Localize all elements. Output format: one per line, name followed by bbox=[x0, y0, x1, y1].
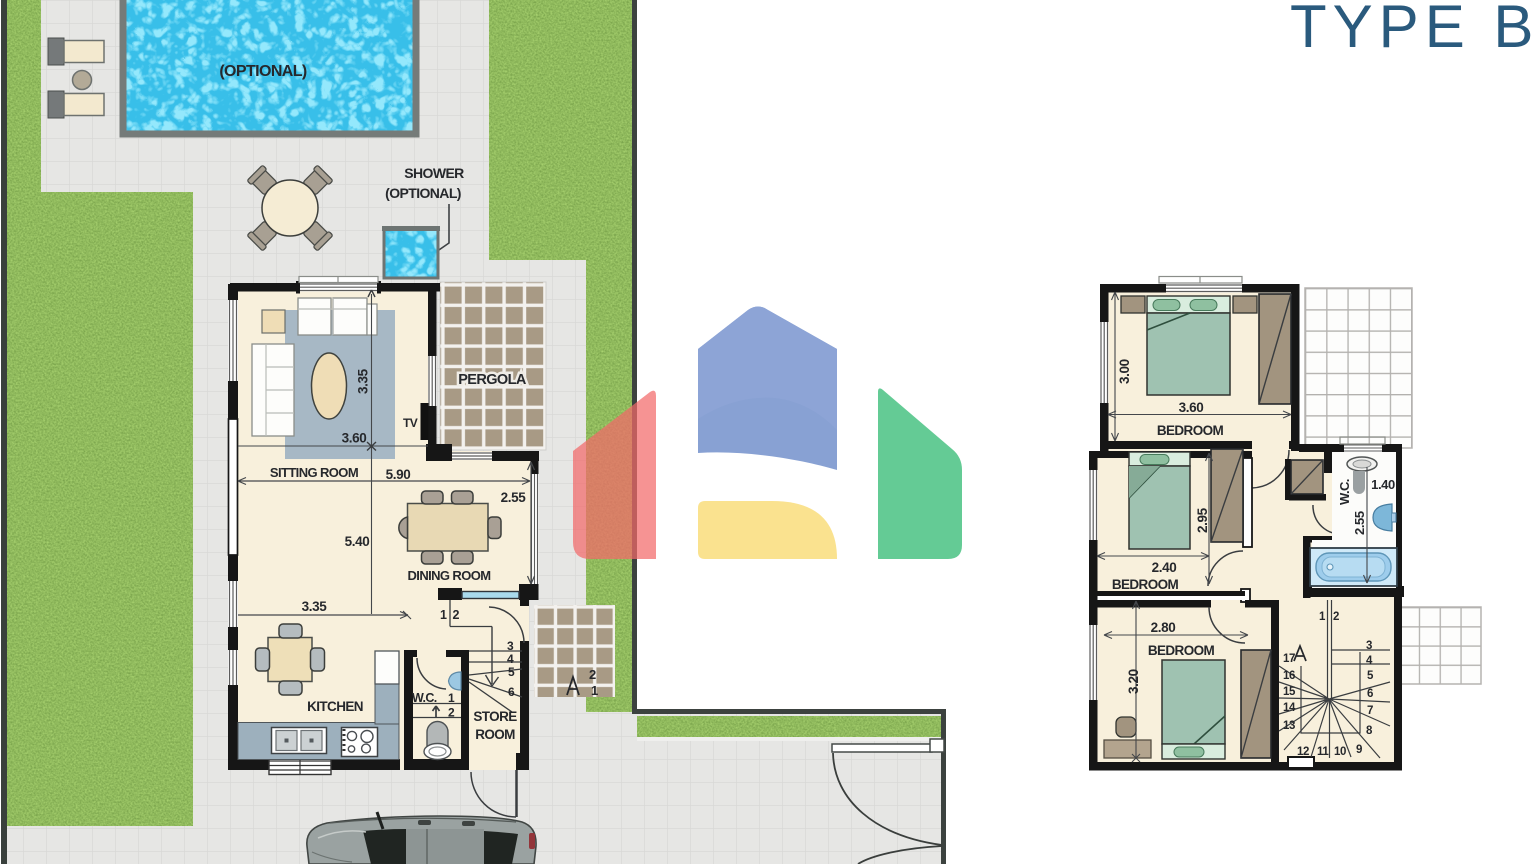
svg-text:9: 9 bbox=[1356, 744, 1362, 756]
svg-text:STORE: STORE bbox=[473, 709, 517, 724]
svg-text:3.35: 3.35 bbox=[302, 599, 328, 614]
svg-text:2: 2 bbox=[1333, 611, 1339, 623]
svg-text:6: 6 bbox=[1367, 688, 1373, 700]
svg-text:3.35: 3.35 bbox=[356, 368, 371, 394]
svg-text:7: 7 bbox=[1367, 705, 1373, 717]
svg-text:3.20: 3.20 bbox=[1126, 669, 1141, 694]
svg-text:17: 17 bbox=[1283, 653, 1295, 665]
svg-text:5.90: 5.90 bbox=[386, 467, 411, 482]
svg-text:BEDROOM: BEDROOM bbox=[1148, 643, 1215, 658]
svg-text:DINING ROOM: DINING ROOM bbox=[408, 568, 491, 583]
svg-text:14: 14 bbox=[1283, 702, 1296, 714]
svg-text:TYPE B: TYPE B bbox=[1290, 0, 1536, 60]
svg-text:5: 5 bbox=[508, 665, 515, 679]
svg-text:1: 1 bbox=[440, 608, 447, 622]
svg-text:2.40: 2.40 bbox=[1152, 560, 1177, 575]
svg-text:3: 3 bbox=[1366, 640, 1372, 652]
svg-text:6: 6 bbox=[508, 685, 515, 699]
svg-text:3: 3 bbox=[507, 639, 514, 653]
svg-text:2.80: 2.80 bbox=[1151, 620, 1176, 635]
svg-text:(OPTIONAL): (OPTIONAL) bbox=[219, 63, 307, 80]
svg-text:ROOM: ROOM bbox=[475, 727, 515, 742]
svg-text:4: 4 bbox=[1366, 655, 1373, 667]
svg-text:12: 12 bbox=[1297, 746, 1309, 758]
svg-text:13: 13 bbox=[1283, 720, 1295, 732]
svg-text:2.55: 2.55 bbox=[1352, 511, 1367, 535]
svg-text:1: 1 bbox=[591, 683, 598, 698]
svg-text:2.95: 2.95 bbox=[1195, 507, 1210, 533]
svg-text:1: 1 bbox=[1319, 611, 1326, 623]
svg-text:4: 4 bbox=[507, 652, 514, 666]
svg-text:3.60: 3.60 bbox=[1179, 400, 1204, 415]
svg-text:2: 2 bbox=[453, 608, 460, 622]
svg-text:8: 8 bbox=[1366, 725, 1373, 737]
svg-text:5.40: 5.40 bbox=[345, 534, 370, 549]
svg-text:2.55: 2.55 bbox=[501, 490, 527, 505]
svg-text:2: 2 bbox=[448, 706, 455, 720]
svg-text:W.C.: W.C. bbox=[1337, 479, 1352, 505]
svg-text:(OPTIONAL): (OPTIONAL) bbox=[385, 185, 461, 201]
svg-text:TV: TV bbox=[403, 416, 418, 430]
svg-text:BEDROOM: BEDROOM bbox=[1157, 423, 1224, 438]
svg-text:15: 15 bbox=[1283, 686, 1296, 698]
svg-text:PERGOLA: PERGOLA bbox=[458, 372, 527, 388]
svg-text:2: 2 bbox=[589, 667, 596, 682]
svg-text:16: 16 bbox=[1283, 670, 1295, 682]
svg-text:KITCHEN: KITCHEN bbox=[307, 699, 363, 714]
svg-text:SITTING ROOM: SITTING ROOM bbox=[270, 465, 358, 480]
svg-text:3.60: 3.60 bbox=[342, 431, 367, 446]
svg-text:BEDROOM: BEDROOM bbox=[1112, 577, 1179, 592]
svg-text:10: 10 bbox=[1334, 746, 1346, 758]
svg-text:5: 5 bbox=[1367, 670, 1374, 682]
svg-text:1: 1 bbox=[448, 691, 455, 705]
svg-text:3.00: 3.00 bbox=[1117, 359, 1132, 384]
svg-text:SHOWER: SHOWER bbox=[404, 165, 464, 181]
svg-text:1.40: 1.40 bbox=[1371, 477, 1395, 492]
svg-text:11: 11 bbox=[1317, 746, 1329, 758]
svg-text:W.C.: W.C. bbox=[412, 691, 437, 705]
